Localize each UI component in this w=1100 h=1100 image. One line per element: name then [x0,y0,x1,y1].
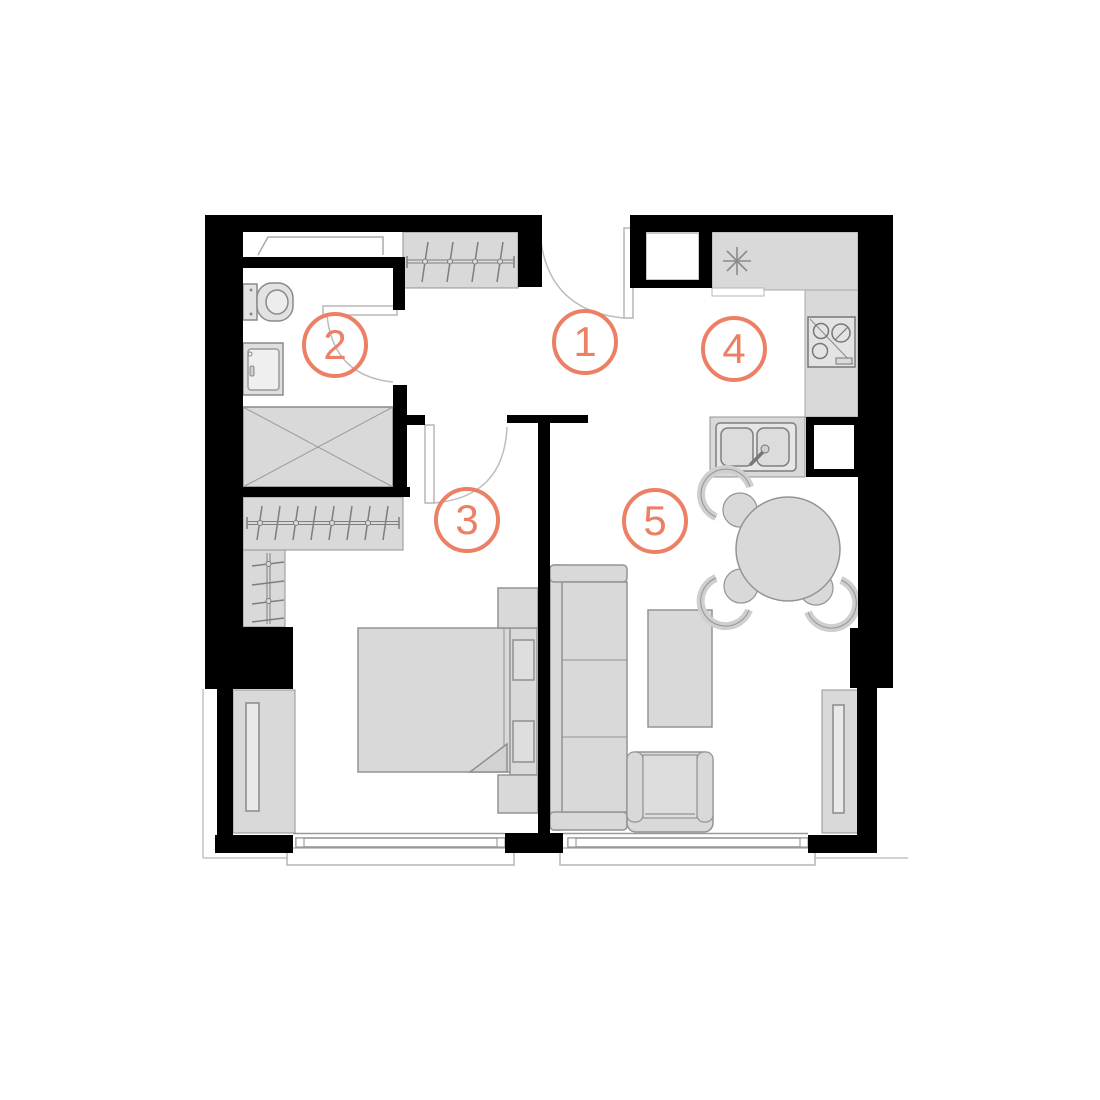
hallway [403,228,699,318]
entrance-door [540,228,633,318]
floor-plan-drawing [0,0,1100,1100]
bedroom-closet-vertical [243,550,285,627]
wall-pier-bottom-left [215,835,293,853]
room-marker-5[interactable]: 5 [622,488,688,554]
nightstand [498,588,538,628]
living-room [550,469,858,833]
wall-shaft-bottom [630,280,712,288]
toilet [243,283,293,321]
coffee-table [648,610,712,727]
room-marker-3[interactable]: 3 [434,487,500,553]
hallway-wardrobe [403,232,518,288]
wall-shaft-left [630,232,646,287]
wall-hall-stub [405,415,425,425]
wall-left [205,215,243,627]
living-radiator [822,690,858,833]
entry-shaft [646,233,699,280]
wall-left-lower [217,689,233,835]
wall-top-left [205,215,540,232]
wall-pier-bottom-right [808,835,877,853]
vent-mark-icon [723,247,751,275]
pillow [513,721,534,762]
wall-bedroom-living [538,415,550,835]
bedroom-door-leaf [425,425,434,503]
wall-right-pier [850,628,893,688]
sofa [550,565,627,830]
bedroom-closet-horizontal [243,497,403,550]
kitchen-counter-front [712,288,764,296]
pillow [513,640,534,680]
wall-bathroom-top [243,257,405,268]
bedroom-radiator [233,690,295,833]
wall-top-right [630,215,893,232]
stove [808,317,855,367]
floor-plan: 1 2 3 4 5 [0,0,1100,1100]
living-room-window [560,834,815,866]
wall-wardrobe-right [518,215,542,287]
room-marker-2[interactable]: 2 [302,312,368,378]
bed [358,628,537,775]
room-marker-4[interactable]: 4 [701,316,767,382]
nightstand [498,775,538,813]
bedroom-window [287,834,514,866]
wall-bathroom-bottom [205,487,410,497]
dining-table [736,497,840,601]
wall-bathroom-right-lower [393,385,407,497]
dining-set [701,469,857,628]
kitchen-shaft-core [814,425,854,469]
wall-right [858,215,893,628]
wall-shaft-right [699,232,712,287]
wall-right-lower [857,688,877,835]
wall-pier-center [505,833,563,853]
wall-left-pier [205,627,293,689]
wall-bathroom-right-upper [393,257,405,310]
niche-panel [258,237,383,255]
armchair [627,752,713,832]
room-marker-1[interactable]: 1 [552,309,618,375]
shower [243,407,393,487]
bathroom-sink [243,343,283,395]
entrance-door-swing-arc [540,234,624,318]
